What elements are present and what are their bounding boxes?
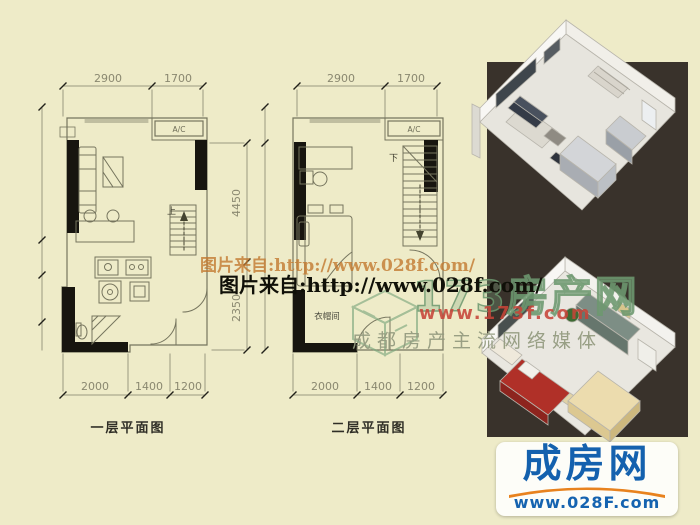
plan2-ac-label: A/C [408,125,421,134]
logo-028f: 成房网 www.028F.com [496,442,678,516]
plan2-nightstand [330,205,343,213]
plan1-stool [107,210,119,222]
plan1-entry-door-arc [183,288,207,312]
plan2-chair [313,172,327,186]
plan1-dim-1700: 1700 [164,72,192,85]
plan1-cabinet [130,282,149,301]
plan1-walls [62,140,207,352]
plan1-dim-2900: 2900 [94,72,122,85]
plan2-dim-1400: 1400 [364,380,392,393]
logo-brand-text: 成房网 [496,443,678,487]
plan1-dim-1200: 1200 [174,380,202,393]
plan1-bath-door-arc [151,319,176,344]
plan1-shower [92,316,120,344]
plan1-toilet [77,325,87,339]
plan1-stool [84,210,96,222]
plan1-title: 一层平面图 [90,421,165,436]
plan1-sofa [79,147,96,213]
watermark-brand-url: www.173f.com [419,303,592,324]
watermark-url-line-main: 图片来自:http://www.028f.com/ [219,269,543,298]
plan1-dim-2350: 2350 [230,294,243,322]
plan2-room-label: 衣帽间 [314,311,340,322]
floorplan-image: 2900 1700 4450 2350 2000 1400 1200 [0,0,700,525]
plan1-ac-label: A/C [173,125,186,134]
plan1-dining-table [76,221,134,242]
plan1-dim-1400: 1400 [135,380,163,393]
plan2-dim-2900: 2900 [327,72,355,85]
logo-url-text: www.028F.com [496,493,678,512]
plan2-desk [299,147,352,169]
plan1-dim-4450: 4450 [230,189,243,217]
plan2-title: 二层平面图 [331,421,406,436]
plan1-stair-up-label: 上 [167,206,176,217]
render-3d-first-floor [470,8,695,238]
plan2-dim-2000: 2000 [311,380,339,393]
plan2-dim-1700: 1700 [397,72,425,85]
plan2-dim-1200: 1200 [407,380,435,393]
plan1-dim-2000: 2000 [81,380,109,393]
render1-wall-ledge [472,104,480,158]
watermark-brand-slogan: 成都房产主流网络媒体 [352,326,602,353]
plan2-stair-down-label: 下 [389,154,398,164]
plan1-furniture [76,147,207,344]
plan2-nightstand [308,205,323,213]
